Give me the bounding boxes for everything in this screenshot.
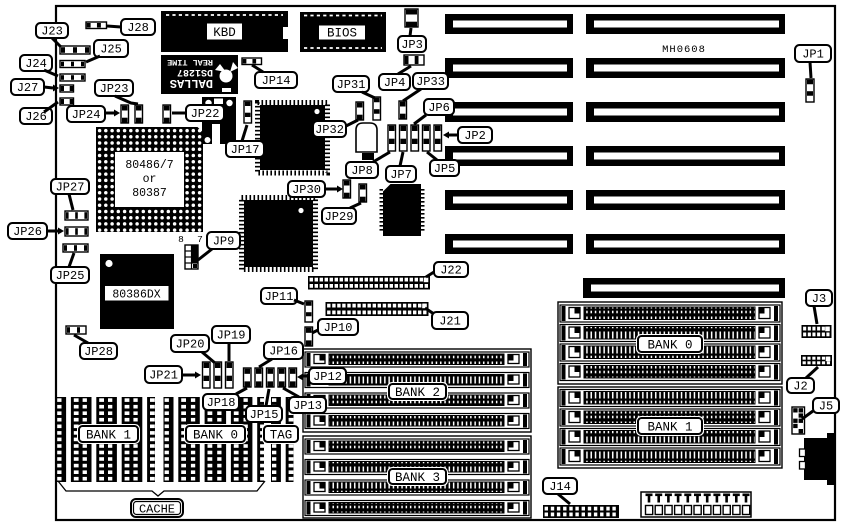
svg-text:8: 8: [178, 234, 184, 245]
svg-text:J21: J21: [439, 315, 461, 329]
svg-text:JP20: JP20: [176, 338, 205, 352]
svg-text:JP28: JP28: [84, 345, 113, 359]
svg-text:J25: J25: [100, 43, 122, 57]
svg-text:J22: J22: [440, 264, 462, 278]
svg-text:BANK 1: BANK 1: [86, 428, 131, 442]
svg-text:JP15: JP15: [250, 408, 279, 422]
svg-text:JP25: JP25: [56, 269, 85, 283]
svg-text:J3: J3: [812, 292, 826, 306]
svg-text:DALLAS: DALLAS: [170, 76, 213, 90]
svg-text:JP10: JP10: [324, 321, 353, 335]
svg-text:JP4: JP4: [384, 76, 406, 90]
svg-text:BANK 1: BANK 1: [647, 420, 692, 434]
svg-text:JP11: JP11: [265, 290, 294, 304]
svg-text:J26: J26: [25, 110, 47, 124]
svg-text:JP23: JP23: [100, 82, 129, 96]
svg-text:BANK 0: BANK 0: [193, 428, 238, 442]
svg-text:J5: J5: [819, 400, 833, 414]
svg-text:JP30: JP30: [292, 183, 321, 197]
svg-text:BANK 2: BANK 2: [395, 386, 440, 400]
svg-text:J28: J28: [127, 21, 149, 35]
svg-text:TAG: TAG: [270, 428, 293, 442]
svg-text:BIOS: BIOS: [327, 27, 357, 41]
svg-text:JP14: JP14: [262, 74, 291, 88]
svg-text:JP13: JP13: [293, 399, 322, 413]
svg-text:BANK 3: BANK 3: [395, 471, 440, 485]
svg-text:J24: J24: [25, 57, 47, 71]
svg-text:JP7: JP7: [390, 168, 412, 182]
svg-text:JP12: JP12: [313, 370, 342, 384]
svg-text:80386DX: 80386DX: [112, 289, 160, 302]
svg-text:JP24: JP24: [72, 108, 101, 122]
svg-text:or: or: [143, 173, 157, 186]
svg-text:BANK 0: BANK 0: [647, 338, 692, 352]
svg-text:J27: J27: [17, 81, 39, 95]
svg-text:J2: J2: [793, 380, 807, 394]
svg-text:JP22: JP22: [191, 107, 220, 121]
svg-text:JP18: JP18: [207, 396, 236, 410]
svg-text:JP17: JP17: [231, 143, 260, 157]
svg-text:80387: 80387: [132, 187, 167, 200]
svg-text:JP32: JP32: [315, 123, 344, 137]
svg-text:CACHE: CACHE: [139, 503, 175, 517]
svg-text:JP16: JP16: [269, 345, 298, 359]
svg-text:JP3: JP3: [401, 38, 423, 52]
svg-text:JP19: JP19: [217, 329, 246, 343]
svg-text:JP9: JP9: [213, 235, 235, 249]
svg-text:JP27: JP27: [56, 181, 85, 195]
svg-text:JP29: JP29: [325, 210, 354, 224]
svg-text:JP33: JP33: [416, 75, 445, 89]
svg-text:JP2: JP2: [464, 129, 486, 143]
svg-text:JP21: JP21: [149, 369, 178, 383]
svg-text:JP8: JP8: [351, 164, 373, 178]
svg-text:J14: J14: [549, 480, 571, 494]
svg-text:JP1: JP1: [802, 48, 824, 62]
svg-text:REAL TIME: REAL TIME: [167, 57, 213, 67]
svg-text:JP26: JP26: [13, 225, 42, 239]
svg-text:J23: J23: [41, 25, 63, 39]
svg-text:JP5: JP5: [434, 162, 456, 176]
svg-text:80486/7: 80486/7: [125, 159, 173, 172]
svg-text:JP31: JP31: [337, 78, 366, 92]
svg-text:KBD: KBD: [213, 26, 236, 40]
svg-text:JP6: JP6: [428, 101, 450, 115]
svg-text:7: 7: [197, 234, 203, 245]
svg-text:MH0608: MH0608: [662, 44, 706, 56]
